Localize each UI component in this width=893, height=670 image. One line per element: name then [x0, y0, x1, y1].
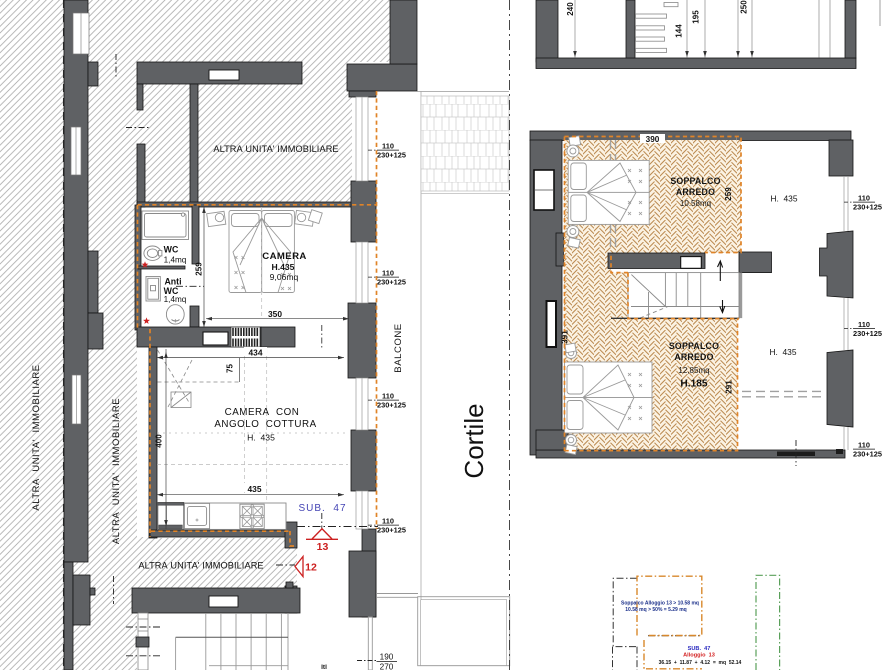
svg-text:259: 259: [195, 262, 204, 276]
svg-text:ALTRA UNITA' IMMOBILIARE: ALTRA UNITA' IMMOBILIARE: [213, 144, 338, 154]
svg-text:230+125: 230+125: [853, 450, 882, 459]
svg-text:ANGOLO COTTURA: ANGOLO COTTURA: [214, 419, 316, 430]
svg-text:SOPPALCO: SOPPALCO: [670, 176, 720, 186]
svg-text:12: 12: [305, 562, 317, 574]
svg-text:110: 110: [382, 517, 394, 526]
svg-text:110: 110: [382, 392, 394, 401]
svg-text:10.58 mq > 50% = 5.29 mq: 10.58 mq > 50% = 5.29 mq: [625, 607, 686, 613]
svg-text:H.435: H.435: [272, 262, 295, 272]
svg-text:144: 144: [675, 24, 684, 38]
svg-text:1,4mq: 1,4mq: [164, 295, 187, 304]
svg-text:110: 110: [858, 320, 870, 329]
svg-text:ltl: ltl: [321, 664, 327, 670]
svg-text:350: 350: [268, 309, 282, 319]
svg-text:400: 400: [155, 434, 164, 448]
svg-text:230+125: 230+125: [377, 151, 406, 160]
svg-text:H.185: H.185: [680, 379, 708, 390]
svg-text:259: 259: [724, 187, 733, 201]
svg-text:H. 435: H. 435: [769, 347, 796, 357]
svg-text:250: 250: [740, 0, 749, 14]
svg-text:SOPPALCO: SOPPALCO: [669, 341, 719, 351]
svg-text:110: 110: [382, 269, 394, 278]
svg-text:H. 435: H. 435: [247, 433, 275, 443]
svg-text:WC: WC: [164, 245, 179, 255]
svg-text:434: 434: [249, 348, 263, 358]
svg-text:H. 435: H. 435: [770, 194, 797, 204]
svg-text:Anti: Anti: [164, 277, 181, 287]
svg-text:391: 391: [560, 330, 569, 344]
svg-text:Cortile: Cortile: [459, 403, 489, 478]
svg-text:BALCONE: BALCONE: [393, 323, 404, 372]
svg-text:240: 240: [566, 2, 575, 16]
svg-text:9,06mq: 9,06mq: [270, 272, 299, 282]
svg-text:110: 110: [858, 441, 870, 450]
svg-text:291: 291: [725, 380, 734, 394]
svg-text:ALTRA UNITA' IMMOBILIARE: ALTRA UNITA' IMMOBILIARE: [110, 398, 121, 544]
svg-text:390: 390: [646, 135, 660, 144]
svg-text:270: 270: [380, 663, 394, 670]
svg-text:Alloggio 13: Alloggio 13: [683, 653, 715, 659]
svg-text:230+125: 230+125: [853, 203, 882, 212]
svg-text:230+125: 230+125: [377, 526, 406, 535]
svg-text:190: 190: [380, 653, 394, 662]
svg-text:ALTRA UNITA' IMMOBILIARE: ALTRA UNITA' IMMOBILIARE: [138, 561, 263, 571]
svg-text:SUB. 47: SUB. 47: [688, 646, 711, 652]
svg-text:ARREDO: ARREDO: [674, 352, 713, 362]
svg-text:110: 110: [382, 142, 394, 151]
svg-text:75: 75: [226, 364, 235, 373]
svg-text:1,4mq: 1,4mq: [164, 256, 187, 265]
svg-text:ALTRA UNITA' IMMOBILIARE: ALTRA UNITA' IMMOBILIARE: [30, 364, 41, 510]
svg-text:435: 435: [248, 484, 262, 494]
svg-text:CAMERA: CAMERA: [262, 251, 307, 262]
svg-text:36.15 + 11.87 + 4.12 = m: 36.15 + 11.87 + 4.12 = mq 52.14: [659, 660, 742, 666]
svg-text:110: 110: [858, 194, 870, 203]
svg-text:ARREDO: ARREDO: [676, 187, 715, 197]
svg-text:230+125: 230+125: [377, 401, 406, 410]
svg-text:Soppalco Alloggio 13 > 10.58 m: Soppalco Alloggio 13 > 10.58 mq: [621, 601, 699, 607]
svg-text:230+125: 230+125: [377, 278, 406, 287]
svg-text:12,85mq: 12,85mq: [678, 366, 709, 375]
svg-text:SUB. 47: SUB. 47: [298, 503, 346, 514]
svg-text:230+125: 230+125: [853, 329, 882, 338]
svg-text:10.58mq: 10.58mq: [680, 199, 711, 208]
svg-text:CAMERA CON: CAMERA CON: [225, 407, 300, 418]
svg-text:13: 13: [317, 541, 329, 553]
svg-text:195: 195: [692, 10, 701, 24]
